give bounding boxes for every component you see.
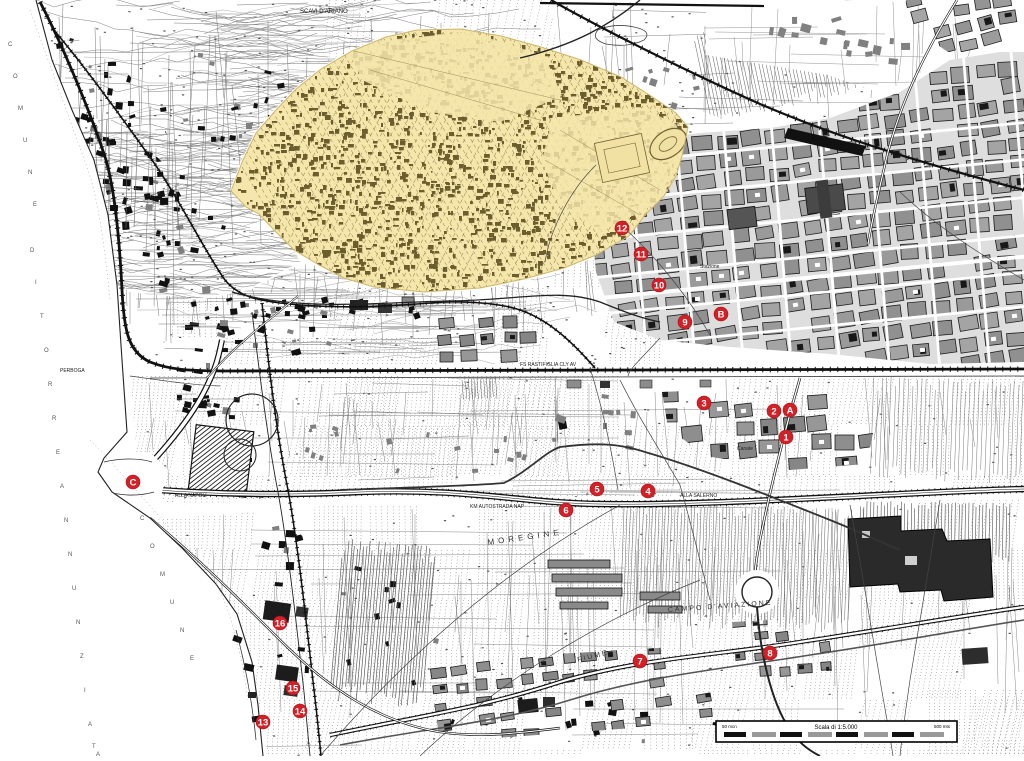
svg-text:15: 15	[288, 683, 299, 694]
svg-text:Z: Z	[80, 654, 84, 660]
svg-text:KM AUTOSTRADA NAP: KM AUTOSTRADA NAP	[470, 504, 525, 510]
svg-text:N: N	[28, 170, 32, 176]
svg-text:O: O	[44, 348, 49, 354]
svg-text:R: R	[52, 416, 57, 422]
svg-text:Canale: Canale	[737, 446, 753, 452]
svg-text:11: 11	[636, 249, 647, 260]
svg-text:C: C	[8, 42, 13, 48]
svg-text:SCAVI D'ARIANO: SCAVI D'ARIANO	[300, 9, 348, 15]
svg-text:M: M	[18, 106, 23, 112]
svg-text:13: 13	[258, 717, 269, 728]
svg-text:E: E	[33, 202, 37, 208]
svg-text:N: N	[64, 518, 68, 524]
svg-text:8: 8	[767, 648, 772, 659]
svg-text:U: U	[72, 586, 76, 592]
svg-text:N: N	[180, 628, 184, 634]
svg-text:B: B	[718, 309, 725, 320]
svg-text:T: T	[40, 314, 44, 320]
svg-text:E: E	[190, 656, 194, 662]
svg-text:6: 6	[563, 505, 568, 516]
svg-text:FS RASTIFIGLIA CLY AV: FS RASTIFIGLIA CLY AV	[520, 362, 577, 368]
svg-text:T: T	[92, 744, 96, 750]
svg-text:A: A	[787, 405, 794, 416]
svg-text:A: A	[88, 722, 92, 728]
svg-text:7: 7	[637, 656, 642, 667]
svg-text:U: U	[23, 138, 27, 144]
svg-text:A: A	[60, 484, 64, 490]
svg-text:14: 14	[295, 706, 306, 717]
svg-text:E: E	[56, 450, 60, 456]
svg-text:C: C	[140, 516, 145, 522]
svg-text:R: R	[48, 382, 53, 388]
svg-text:ALLA NAPOLI: ALLA NAPOLI	[175, 493, 207, 499]
svg-text:5: 5	[594, 484, 600, 495]
svg-text:N: N	[68, 552, 72, 558]
svg-text:500 mts: 500 mts	[934, 724, 951, 729]
svg-text:C: C	[130, 477, 137, 488]
svg-text:PERBOGA: PERBOGA	[60, 368, 85, 374]
svg-text:2: 2	[771, 406, 776, 417]
svg-text:9: 9	[682, 317, 687, 328]
svg-text:10: 10	[654, 280, 665, 291]
svg-text:M: M	[160, 572, 165, 578]
svg-text:4: 4	[645, 486, 651, 497]
svg-text:O: O	[13, 74, 18, 80]
svg-text:3: 3	[701, 398, 706, 409]
svg-text:A: A	[96, 752, 100, 756]
svg-text:Stazione: Stazione	[700, 264, 720, 270]
svg-text:O: O	[150, 544, 155, 550]
svg-text:16: 16	[275, 618, 286, 629]
svg-text:D: D	[30, 248, 35, 254]
svg-text:1: 1	[783, 432, 789, 443]
svg-text:U: U	[170, 600, 174, 606]
svg-text:Scala di 1:5.000: Scala di 1:5.000	[814, 725, 858, 731]
svg-text:12: 12	[617, 223, 628, 234]
svg-text:N: N	[76, 620, 80, 626]
svg-text:50 mcn: 50 mcn	[722, 724, 737, 729]
svg-text:ALLA SALERNO: ALLA SALERNO	[680, 493, 717, 499]
